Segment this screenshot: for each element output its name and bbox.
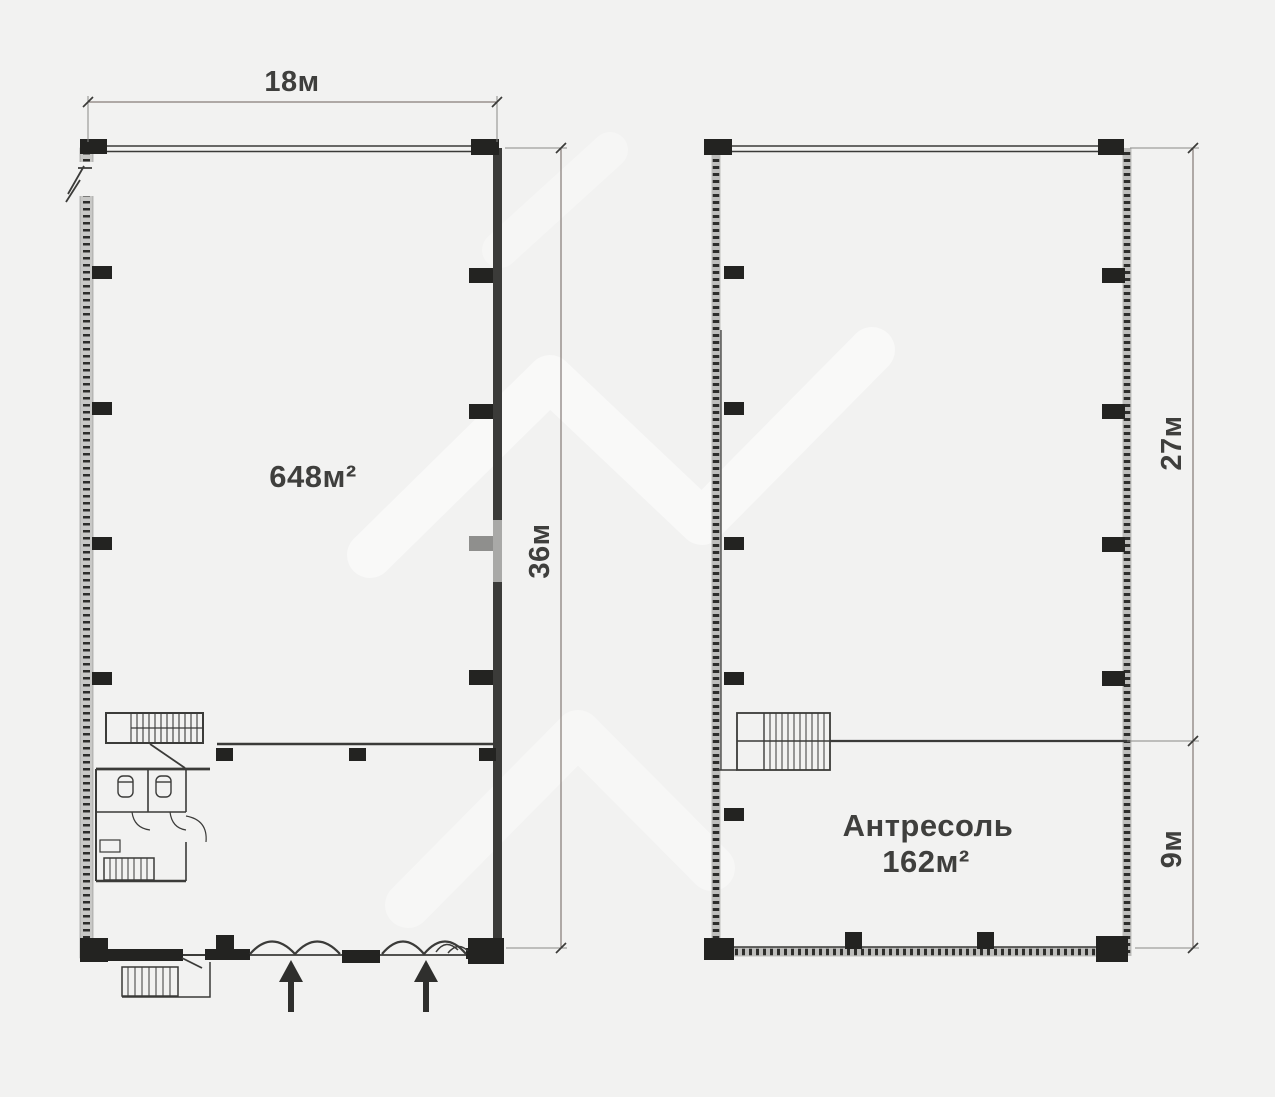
depth-dimension-label: 36м xyxy=(524,523,556,578)
mezzanine-area-label: 162м² xyxy=(882,844,969,879)
floor-plan-image: 648м² 18м 36м xyxy=(0,0,1275,1097)
first-floor-area-label: 648м² xyxy=(269,459,356,494)
hall-depth-dimension-label: 27м xyxy=(1156,415,1188,470)
page-background xyxy=(0,0,1275,1097)
mezzanine-name-label: Антресоль xyxy=(843,808,1014,843)
width-dimension-label: 18м xyxy=(264,66,319,98)
floor-plan-canvas: 648м² 18м 36м xyxy=(0,0,1275,1097)
mezzanine-depth-dimension-label: 9м xyxy=(1156,830,1188,869)
